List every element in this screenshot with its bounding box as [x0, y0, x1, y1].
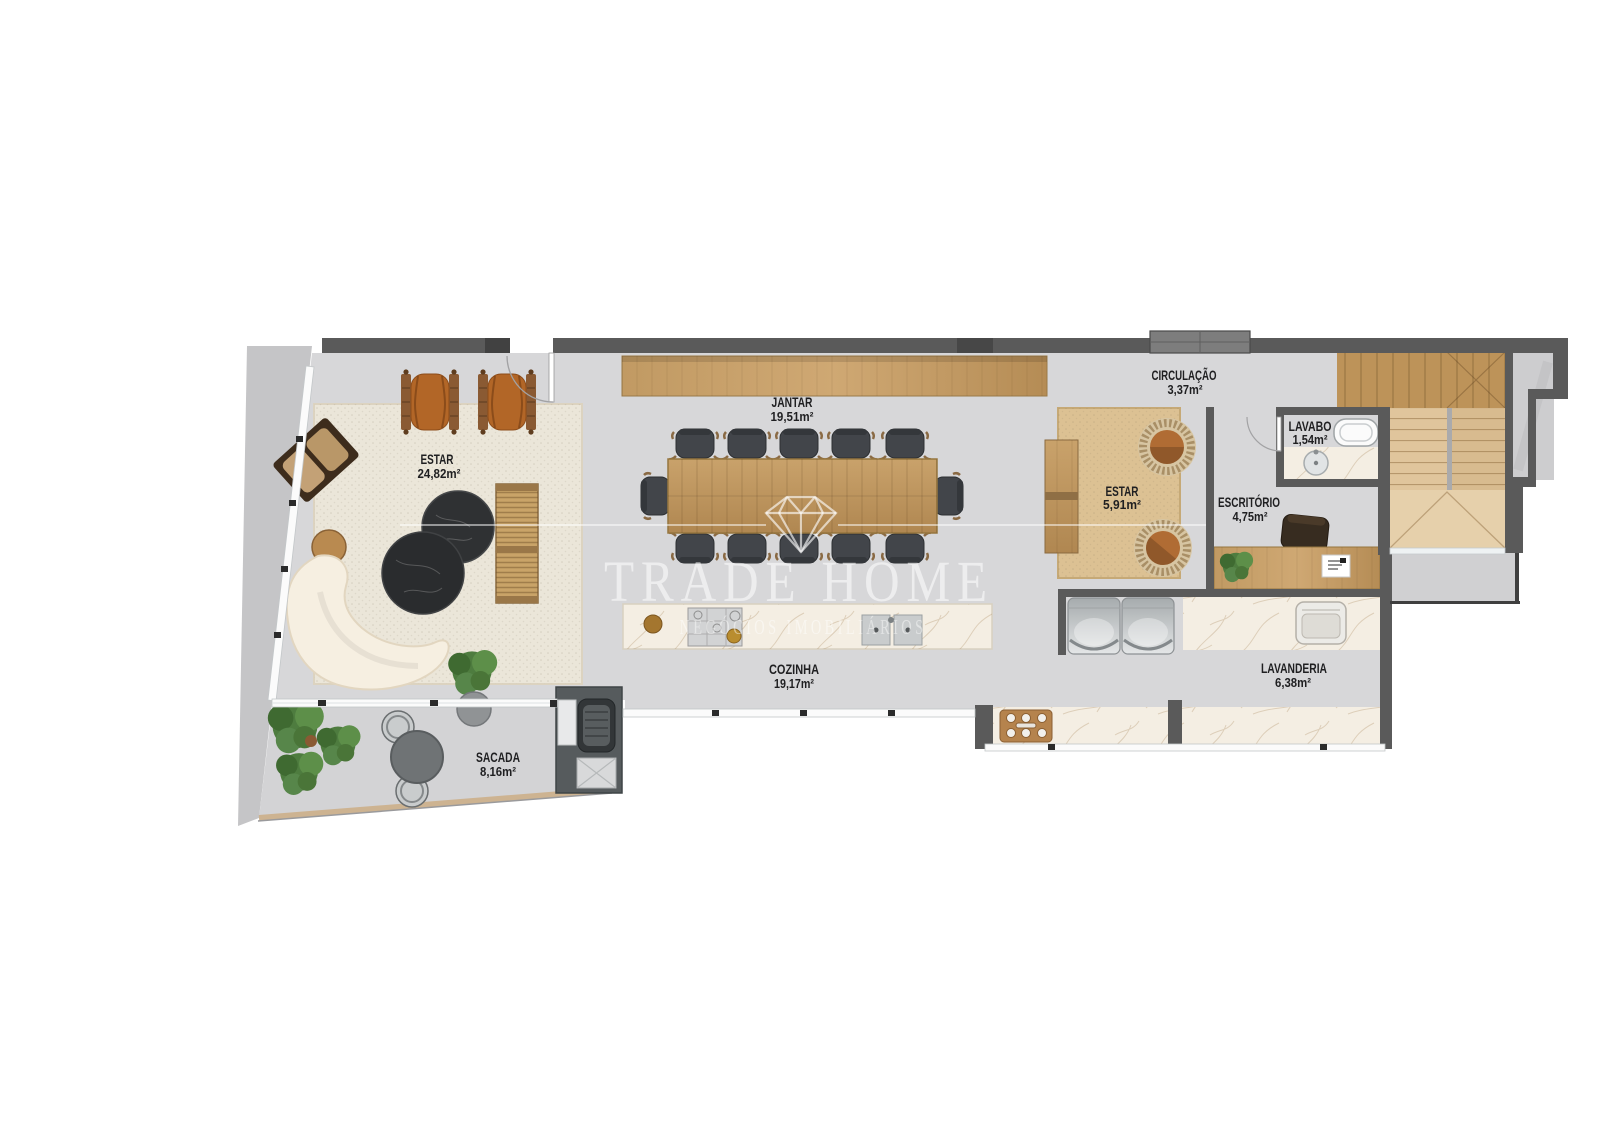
room-label-sacada: SACADA [476, 749, 520, 765]
room-area-circulacao: 3,37m² [1168, 383, 1203, 397]
room-label-estar-intimo: ESTAR [1106, 483, 1139, 499]
dryer [1122, 598, 1174, 654]
rattan-chair [1138, 418, 1196, 476]
window-lavanderia [985, 744, 1385, 751]
room-label-jantar: JANTAR [772, 394, 813, 410]
sideboard [622, 356, 1047, 396]
watermark-brand: TRADE HOME [604, 549, 994, 614]
room-area-lavabo: 1,54m² [1293, 433, 1328, 447]
desk-paper [1322, 555, 1350, 577]
room-area-cozinha: 19,17m² [774, 677, 814, 691]
armchair [478, 369, 536, 434]
room-area-estar-intimo: 5,91m² [1103, 498, 1141, 512]
decor-bowl [644, 615, 662, 633]
slatted-bench [496, 484, 538, 603]
floor-plan-drawing: TRADE HOME NEGÓCIOS IMOBILIÁRIOS ESTAR 2… [0, 0, 1600, 1131]
stairs-landing [1390, 490, 1505, 550]
stairs-divider [1447, 408, 1452, 490]
floor-plan-page: TRADE HOME NEGÓCIOS IMOBILIÁRIOS ESTAR 2… [0, 0, 1600, 1131]
room-area-estar-living: 24,82m² [418, 467, 461, 481]
faucet [1314, 450, 1319, 455]
room-area-escritorio: 4,75m² [1233, 510, 1268, 524]
sink-drain [1314, 461, 1318, 465]
wood-console [1045, 440, 1078, 553]
room-label-lavabo: LAVABO [1289, 418, 1332, 434]
front-door-panel [1150, 331, 1250, 353]
sliding-door-balcony [272, 699, 557, 707]
washer [1068, 598, 1120, 654]
gas-cooktop [1000, 710, 1052, 742]
window-kitchen [623, 709, 975, 717]
laundry-tub [1296, 602, 1346, 644]
hall-glass [1390, 548, 1505, 554]
hall-floor [1390, 553, 1515, 601]
watermark-rule-right [838, 524, 1206, 526]
plant-pot [305, 735, 317, 747]
armchair [401, 369, 459, 434]
room-area-sacada: 8,16m² [480, 765, 516, 779]
room-label-cozinha: COZINHA [769, 661, 819, 677]
room-label-escritorio: ESCRITÓRIO [1218, 493, 1280, 510]
room-label-circulacao: CIRCULAÇÃO [1152, 366, 1217, 383]
room-area-lavanderia: 6,38m² [1275, 676, 1311, 690]
coffee-table [382, 532, 464, 614]
room-label-lavanderia: LAVANDERIA [1261, 660, 1327, 676]
watermark-rule-left [400, 524, 766, 526]
watermark-tagline: NEGÓCIOS IMOBILIÁRIOS [680, 615, 927, 639]
balcony-table [391, 731, 443, 783]
round-side-table [457, 692, 491, 726]
grill-station [556, 687, 622, 793]
room-area-jantar: 19,51m² [771, 410, 814, 424]
room-label-estar-living: ESTAR [421, 451, 454, 467]
